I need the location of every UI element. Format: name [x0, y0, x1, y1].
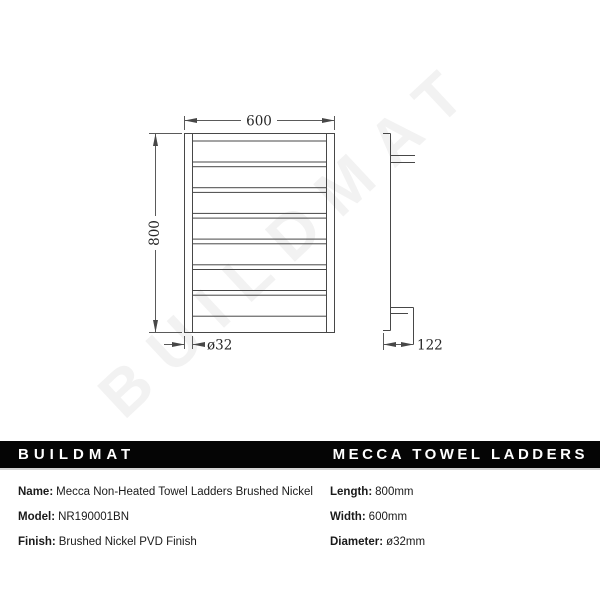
spec-label: Diameter:	[330, 536, 383, 548]
arrowhead-left-icon	[384, 342, 397, 347]
specs-left-column: Name:Mecca Non-Heated Towel Ladders Brus…	[18, 486, 313, 561]
product-line-title: MECCA TOWEL LADDERS	[333, 446, 600, 463]
technical-drawing-area: BUILDMAT 600	[0, 0, 600, 441]
towel-bar-4	[193, 218, 327, 239]
right-rail	[327, 134, 335, 333]
arrowhead-left-icon	[185, 118, 198, 123]
spec-row-finish: Finish:Brushed Nickel PVD Finish	[18, 536, 313, 548]
towel-bar-3	[193, 192, 327, 213]
towel-bar-2	[193, 167, 327, 188]
specs-right-column: Length:800mm Width:600mm Diameter:ø32mm	[330, 486, 425, 561]
dimension-label-600: 600	[246, 114, 272, 130]
spec-row-width: Width:600mm	[330, 511, 425, 523]
spec-label: Model:	[18, 511, 55, 523]
arrowhead-left-icon	[193, 342, 206, 347]
side-view	[383, 134, 415, 345]
spec-label: Width:	[330, 511, 366, 523]
spec-row-diameter: Diameter:ø32mm	[330, 536, 425, 548]
spec-value: 600mm	[369, 511, 407, 523]
arrowhead-down-icon	[153, 320, 158, 333]
towel-bar-6	[193, 270, 327, 291]
arrowhead-up-icon	[153, 134, 158, 147]
dimension-width: 600	[185, 114, 335, 131]
towel-bar-7	[193, 295, 327, 316]
towel-bar-5	[193, 244, 327, 265]
dimension-label-800: 800	[147, 220, 163, 246]
towel-ladder-cad-drawing: 600 800 ø32	[0, 0, 600, 441]
spec-value: NR190001BN	[58, 511, 129, 523]
specifications-section: Name:Mecca Non-Heated Towel Ladders Brus…	[0, 470, 600, 600]
dimension-bar-diameter: ø32	[164, 336, 232, 354]
spec-value: ø32mm	[386, 536, 425, 548]
spec-value: Mecca Non-Heated Towel Ladders Brushed N…	[56, 486, 313, 498]
arrowhead-right-icon	[322, 118, 335, 123]
spec-value: Brushed Nickel PVD Finish	[59, 536, 197, 548]
spec-label: Finish:	[18, 536, 56, 548]
spec-label: Name:	[18, 486, 53, 498]
title-banner: BUILDMAT MECCA TOWEL LADDERS	[0, 441, 600, 470]
dimension-height: 800	[147, 134, 182, 333]
spec-row-name: Name:Mecca Non-Heated Towel Ladders Brus…	[18, 486, 313, 498]
dimension-label-diameter: ø32	[207, 338, 232, 354]
brand-name: BUILDMAT	[0, 446, 135, 463]
spec-row-length: Length:800mm	[330, 486, 425, 498]
front-view	[185, 134, 335, 333]
left-rail	[185, 134, 193, 333]
spec-row-model: Model:NR190001BN	[18, 511, 313, 523]
arrowhead-right-icon	[401, 342, 414, 347]
spec-label: Length:	[330, 486, 372, 498]
towel-bar-1	[193, 141, 327, 162]
arrowhead-right-icon	[172, 342, 185, 347]
dimension-label-122: 122	[417, 338, 443, 354]
spec-value: 800mm	[375, 486, 413, 498]
